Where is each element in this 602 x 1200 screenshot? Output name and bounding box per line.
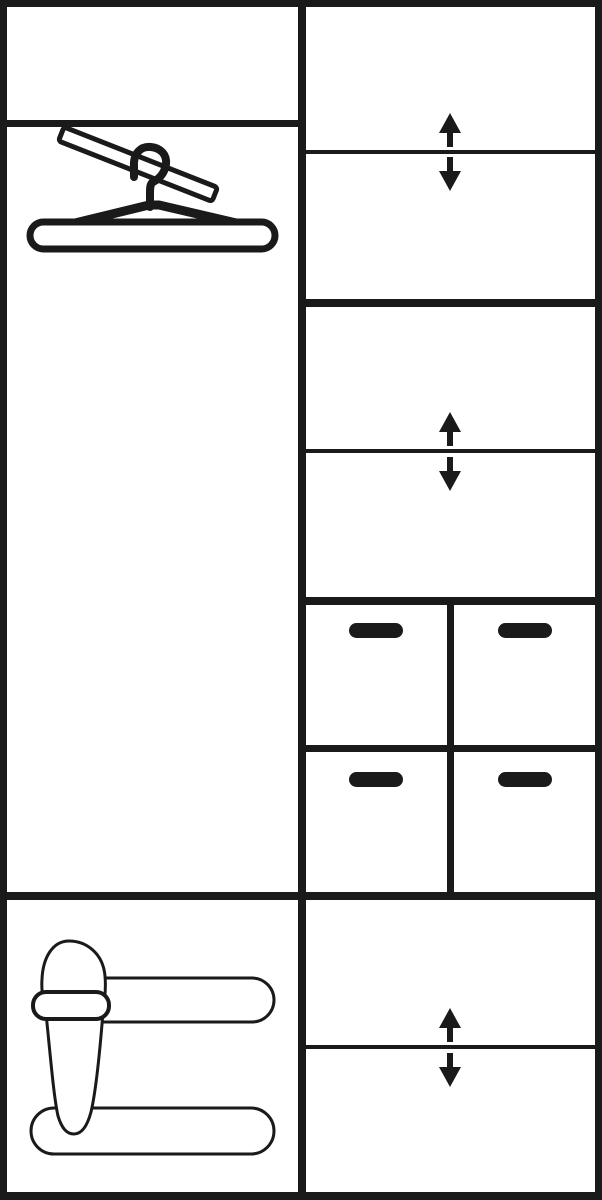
compartment-left-top — [7, 7, 298, 120]
right-adjustable-shelf-1 — [306, 150, 602, 154]
shelf-up-arrow-icon — [438, 1008, 462, 1042]
drawer-handle-icon — [498, 623, 552, 638]
shelf-up-arrow-icon — [438, 412, 462, 446]
right-adjustable-shelf-2 — [306, 449, 602, 453]
shelf-down-arrow-icon — [438, 157, 462, 191]
clothes-hanger-icon — [20, 115, 286, 260]
right-fixed-shelf-1 — [306, 299, 602, 307]
right-fixed-shelf-2 — [306, 597, 602, 605]
shelf-up-arrow-icon — [438, 113, 462, 147]
center-vertical-panel — [298, 0, 306, 1200]
drawer-handle-icon — [349, 623, 403, 638]
shelf-down-arrow-icon — [438, 457, 462, 491]
drawer-horizontal-divider — [306, 745, 602, 752]
full-width-shelf — [0, 892, 602, 900]
right-adjustable-shelf-3 — [306, 1045, 602, 1049]
hanging-rail-icon — [59, 127, 218, 201]
drawer-handle-icon — [349, 772, 403, 787]
slipper-strap-icon — [33, 992, 109, 1019]
slipper-sole-icon — [42, 941, 106, 1134]
shelf-down-arrow-icon — [438, 1053, 462, 1087]
hanger-bar-icon — [30, 222, 275, 249]
drawer-handle-icon — [498, 772, 552, 787]
shoe-rack-icon — [20, 930, 286, 1165]
frame-left-edge — [0, 0, 7, 1200]
wardrobe-schematic — [0, 0, 602, 1200]
